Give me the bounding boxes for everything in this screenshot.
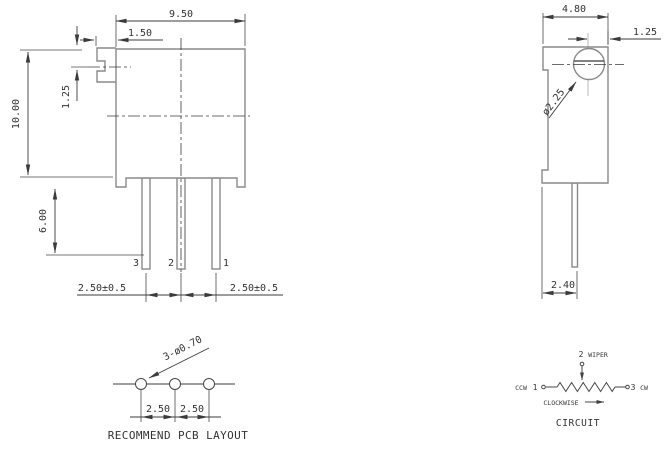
front-pin-1 <box>212 178 220 269</box>
hole-callout-label: 3-ø0.70 <box>162 334 205 363</box>
dim-pin-length-label: 6.00 <box>38 209 49 233</box>
front-pin2-label: 2 <box>168 258 174 269</box>
front-body <box>116 49 245 187</box>
trimmer-potentiometer-drawing: 9.50 1.50 1.25 10.00 6.00 3 2 1 2.50± <box>0 0 672 450</box>
circuit-pin2-label: 2 <box>579 350 584 359</box>
circuit-ccw-label: CCW <box>515 384 527 392</box>
dim-depth-label: 4.80 <box>562 4 586 15</box>
circuit-cw-label: CW <box>640 384 648 392</box>
dim-tab-offset-label: 1.50 <box>128 28 152 39</box>
circuit-pin3-label: 3 <box>631 383 636 392</box>
front-pin3-label: 3 <box>133 258 139 269</box>
circuit-terminal-3 <box>626 385 630 389</box>
circuit-wiper-label: WIPER <box>588 351 608 359</box>
pcb-hole-1 <box>204 379 215 390</box>
dim-pitch-left-label: 2.50±0.5 <box>78 283 126 294</box>
side-pin <box>572 183 578 267</box>
technical-drawing-sheet: 9.50 1.50 1.25 10.00 6.00 3 2 1 2.50± <box>0 0 672 450</box>
dim-hole-pitch2-label: 2.50 <box>180 404 204 415</box>
circuit-terminal-2 <box>580 362 584 366</box>
pcb-hole-2 <box>170 379 181 390</box>
pcb-layout-caption: RECOMMEND PCB LAYOUT <box>108 429 248 442</box>
front-screw-tab <box>97 48 116 82</box>
dim-slot-offset-label: 1.25 <box>61 85 72 109</box>
circuit-clockwise-label: CLOCKWISE <box>543 399 578 407</box>
dim-body-height-label: 10.00 <box>11 99 22 129</box>
circuit-schematic: 2 WIPER CCW 1 3 CW CLOCKWISE CIRCUIT <box>515 350 648 429</box>
dim-hole-pitch1-label: 2.50 <box>146 404 170 415</box>
dim-screw-edge-label: 1.25 <box>633 27 657 38</box>
front-view <box>88 38 250 272</box>
resistor-element <box>557 383 615 392</box>
side-view <box>542 33 624 267</box>
pcb-hole-3 <box>136 379 147 390</box>
dim-body-width-label: 9.50 <box>169 9 193 20</box>
dim-pin-offset-label: 2.40 <box>551 280 575 291</box>
adjust-screw-circle <box>574 49 605 80</box>
circuit-caption: CIRCUIT <box>556 418 600 429</box>
circuit-terminal-1 <box>542 385 546 389</box>
dim-pitch-right-label: 2.50±0.5 <box>230 283 278 294</box>
circuit-pin1-label: 1 <box>533 383 538 392</box>
pcb-layout: 2.50 2.50 3-ø0.70 RECOMMEND PCB LAYOUT <box>108 334 248 442</box>
front-pin1-label: 1 <box>223 258 229 269</box>
